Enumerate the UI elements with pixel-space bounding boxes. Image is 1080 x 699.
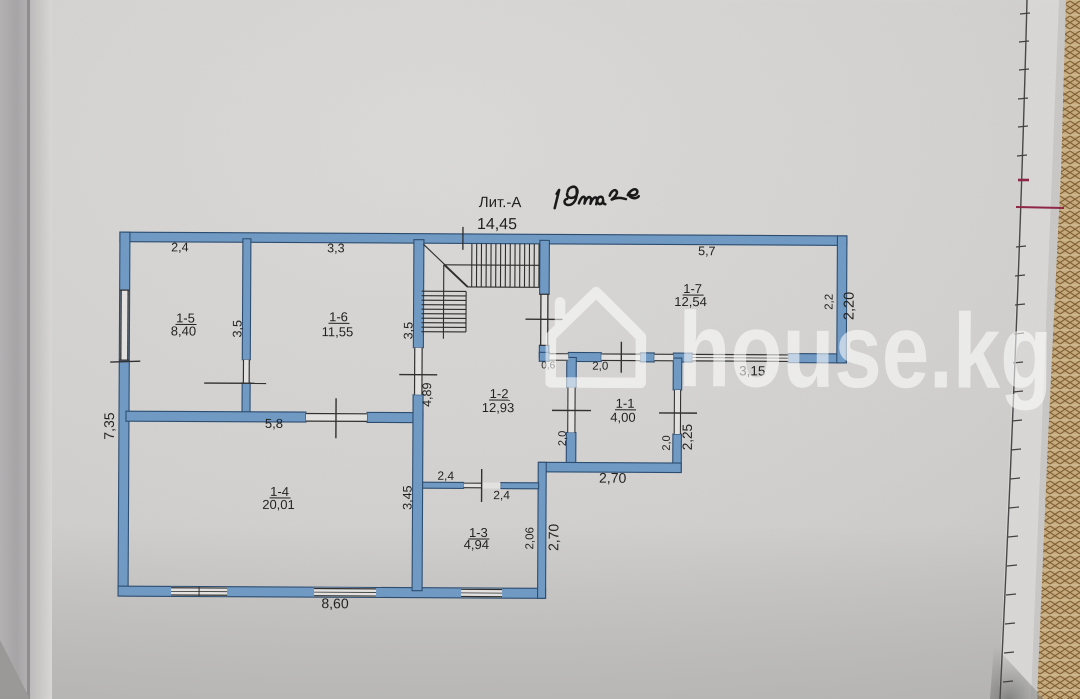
svg-text:house.kg: house.kg <box>678 291 1053 411</box>
